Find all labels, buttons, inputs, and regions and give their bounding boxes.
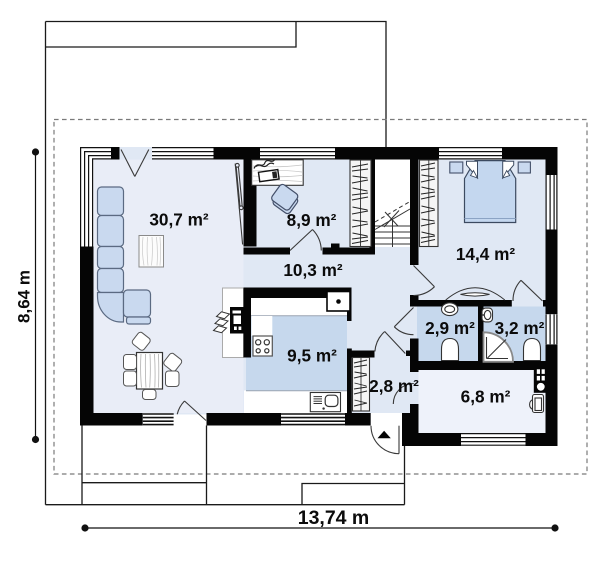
svg-text:2,9 m²: 2,9 m² — [425, 318, 475, 338]
svg-text:9,5 m²: 9,5 m² — [287, 346, 337, 366]
svg-text:13,74 m: 13,74 m — [298, 507, 370, 529]
svg-text:6,8 m²: 6,8 m² — [461, 387, 511, 407]
svg-text:8,64 m: 8,64 m — [15, 270, 34, 323]
svg-text:10,3 m²: 10,3 m² — [283, 260, 343, 280]
svg-text:14,4 m²: 14,4 m² — [456, 244, 516, 264]
svg-text:30,7 m²: 30,7 m² — [149, 210, 209, 230]
svg-text:8,9 m²: 8,9 m² — [287, 210, 337, 230]
svg-text:2,8 m²: 2,8 m² — [369, 376, 419, 396]
svg-text:3,2 m²: 3,2 m² — [495, 318, 545, 338]
